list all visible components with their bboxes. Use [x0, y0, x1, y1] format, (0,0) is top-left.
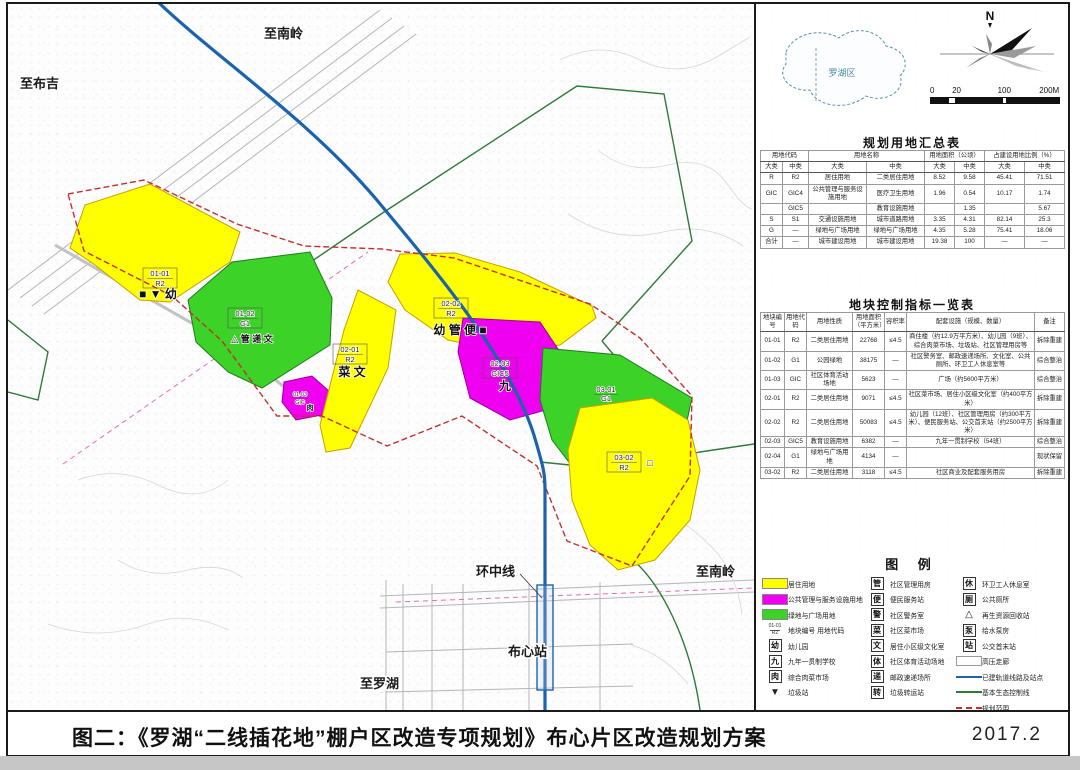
summary-table-body: RR2居住用地二类居住用地8.529.5845.4171.51GICGIC4公共… [761, 173, 1065, 248]
svg-text:01-03: 01-03 [293, 392, 307, 398]
svg-text:GIC5: GIC5 [491, 369, 509, 378]
svg-text:01-02: 01-02 [235, 309, 254, 318]
svg-text:G1: G1 [240, 319, 250, 328]
legend-label: 社区警务室 [890, 610, 924, 620]
table-row: G—绿地与广场用地绿地与广场用地4.355.2875.4118.06 [761, 226, 1065, 237]
table-cell: 绿地与广场用地 [867, 226, 925, 237]
scale-tick: 20 [952, 86, 961, 95]
legend-item: 基本生态控制线 [956, 685, 1066, 701]
legend-label: 高压走廊 [982, 656, 1009, 666]
right-panel: 罗湖区 N 0 20 100 200M [756, 4, 1068, 710]
legend-label: 垃圾站 [788, 687, 808, 697]
table-cell: 公园绿地 [807, 351, 853, 370]
table-cell: 3.35 [925, 215, 955, 226]
bus-terminal-icon: 站 [956, 639, 982, 652]
legend-item: 体社区体育活动场地 [864, 654, 956, 670]
header-cell: 中类 [955, 162, 985, 173]
table-cell: 教育设施用地 [807, 437, 853, 448]
legend-label: 再生资源回收站 [982, 610, 1030, 620]
eco-line-sample [956, 691, 982, 693]
table-cell [925, 203, 955, 214]
table-cell: 绿地与广场用地 [809, 226, 867, 237]
svg-text:肉: 肉 [307, 403, 314, 412]
table-cell: 50083 [853, 409, 885, 437]
water-pump-icon: 泵 [956, 624, 982, 637]
legend-item: 递邮政速递场所 [864, 669, 956, 685]
header-cell: 用地面积（平方米） [853, 313, 885, 332]
table-row: 02-01R2二类居住用地9071≤4.5社区菜市场、居住小区级文化室（约400… [761, 390, 1065, 409]
figure-title: 图二：《罗湖“二线插花地”棚户区改造专项规划》布心片区改造规划方案 [72, 722, 767, 752]
col-group-land-name: 用地名称 [809, 151, 925, 162]
table-cell: S1 [783, 215, 809, 226]
legend-label: 综合肉菜市场 [788, 672, 829, 682]
legend-label: 公共厕所 [982, 594, 1009, 604]
meat-market-icon: 肉 [762, 670, 788, 683]
table-cell: G [761, 226, 783, 237]
legend-label: 给水泵房 [982, 625, 1009, 635]
table-cell: 居住用地 [809, 173, 867, 184]
legend-item: 站公交首末站 [956, 638, 1066, 654]
inset-district-label: 罗湖区 [828, 68, 855, 78]
svg-text:□: □ [647, 458, 653, 468]
table-cell: GIC5 [783, 203, 809, 214]
legend-item: 休环卫工人休息室 [956, 576, 1066, 592]
legend-label: 社区体育活动场地 [890, 656, 944, 666]
table-cell: 1.74 [1025, 184, 1065, 203]
col-group-land-area: 用地面积（公顷） [925, 151, 985, 162]
label-to-nanling-right: 至南岭 [696, 564, 735, 579]
legend-label: 基本生态控制线 [982, 687, 1030, 697]
table-cell: 5.28 [955, 226, 985, 237]
district-inset-map: 罗湖区 [764, 20, 918, 120]
parcel-03-02 [568, 398, 700, 570]
legend-item: 文居住小区级文化室 [864, 638, 956, 654]
table-cell: 01-03 [761, 371, 785, 390]
table-cell: 二类居住用地 [807, 409, 853, 437]
figure-date: 2017.2 [972, 724, 1042, 746]
header-cell: 中类 [1025, 162, 1065, 173]
indicator-table-title: 地块控制指标一览表 [756, 296, 1068, 313]
svg-text:G1: G1 [601, 394, 611, 403]
table-cell: — [1025, 237, 1065, 248]
summary-table: 用地代码 用地名称 用地面积（公顷） 占建设用地比例（%） 大类中类大类中类大类… [760, 150, 1065, 249]
header-cell: 中类 [867, 162, 925, 173]
table-cell: 4.35 [925, 226, 955, 237]
table-cell: 城市建设用地 [809, 237, 867, 248]
recycling-icon: △ [956, 609, 982, 620]
table-cell: 19.38 [925, 237, 955, 248]
table-cell: 02-03 [761, 437, 785, 448]
table-cell: 九年一贯制学校（54班） [907, 437, 1035, 448]
table-cell [809, 203, 867, 214]
table-cell: GIC5 [785, 437, 807, 448]
table-cell: 3118 [853, 467, 885, 478]
table-cell: 6382 [853, 437, 885, 448]
table-cell: 01-02 [761, 351, 785, 370]
svg-text:菜 文: 菜 文 [337, 364, 366, 379]
table-cell: ≤4.5 [885, 390, 907, 409]
scale-tick: 200M [1039, 86, 1059, 95]
legend-item: 绿地与广场用地 [762, 607, 862, 623]
table-cell: 二类居住用地 [807, 332, 853, 351]
table-cell: 拆除重建 [1035, 390, 1065, 409]
header-cell: 中类 [783, 162, 809, 173]
market-icon: 菜 [864, 624, 890, 637]
table-cell: — [885, 371, 907, 390]
buxin-station-box [537, 585, 553, 690]
table-cell: 75.41 [985, 226, 1025, 237]
legend-item: 公共管理与服务设施用地 [762, 592, 862, 608]
table-cell: R [761, 173, 783, 184]
table-row: 01-02G1公园绿地38175—社区警务室、邮政速递场所、文化室、公共厕所、环… [761, 351, 1065, 370]
table-cell: R2 [785, 390, 807, 409]
table-row: RR2居住用地二类居住用地8.529.5845.4171.51 [761, 173, 1065, 184]
table-cell: 10.17 [985, 184, 1025, 203]
label-to-buji: 至布吉 [20, 76, 59, 91]
header-cell: 大类 [925, 162, 955, 173]
legend-item: 幼幼儿园 [762, 638, 862, 654]
legend-label: 环卫工人休息室 [982, 579, 1030, 589]
scale-tick: 0 [930, 86, 934, 95]
table-cell: 0.54 [955, 184, 985, 203]
nine-year-school-icon: 九 [762, 655, 788, 668]
legend-item: 肉综合肉菜市场 [762, 669, 862, 685]
sanitation-rest-icon: 休 [956, 577, 982, 590]
legend-item: △再生资源回收站 [956, 607, 1066, 623]
map-area: 01-01 R2 ■ ▼ 幼 01-02 G1 △ 管 递 文 01-03 GI… [8, 4, 754, 710]
summary-table-title: 规划用地汇总表 [756, 134, 1068, 151]
convenience-service-icon: 便 [864, 593, 890, 606]
table-cell: 交通设施用地 [809, 215, 867, 226]
table-row: 01-01R2二类居住用地22768≤4.5商住楼（约12.9万平方米）、幼儿园… [761, 332, 1065, 351]
table-cell: 城市道路用地 [867, 215, 925, 226]
legend-column-3: 休环卫工人休息室厕公共厕所△再生资源回收站泵给水泵房站公交首末站高压走廊已建轨道… [956, 576, 1066, 716]
north-label: N [986, 9, 995, 23]
table-cell: G1 [785, 351, 807, 370]
table-row: 01-03GIC社区体育活动场地5623—广场（约5600平方米）综合整治 [761, 371, 1065, 390]
svg-text:02-03: 02-03 [490, 359, 509, 368]
plan-boundary-sample [956, 707, 982, 709]
table-cell: 综合整治 [1035, 437, 1065, 448]
legend-label: 地块编号 用地代码 [788, 625, 844, 635]
header-cell: 用地代码 [785, 313, 807, 332]
table-cell [985, 203, 1025, 214]
legend-item: 泵给水泵房 [956, 623, 1066, 639]
table-row: 合计—城市建设用地城市建设用地19.38100—— [761, 237, 1065, 248]
legend-item: 已建轨道线路及站点 [956, 669, 1066, 685]
legend-title: 图 例 [756, 554, 1068, 573]
table-cell: 社区警务室、邮政速递场所、文化室、公共厕所、环卫工人休息室等 [907, 351, 1035, 370]
indicator-table: 地块编号用地代码用地性质用地面积（平方米）容积率配套设施（规模、数量）备注 01… [760, 312, 1065, 479]
table-row: 02-03GIC5教育设施用地6382—九年一贯制学校（54班）综合整治 [761, 437, 1065, 448]
legend-label: 幼儿园 [788, 641, 808, 651]
hv-corridor-swatch [956, 656, 982, 666]
table-cell: 教育设施用地 [867, 203, 925, 214]
table-cell: GIC [785, 371, 807, 390]
label-to-luohu: 至罗湖 [360, 676, 399, 691]
table-cell [761, 203, 783, 214]
table-cell: 38175 [853, 351, 885, 370]
table-cell: 100 [955, 237, 985, 248]
table-cell: 社区商业及配套服务用房 [907, 467, 1035, 478]
table-cell: 03-02 [761, 467, 785, 478]
table-cell: R2 [785, 332, 807, 351]
table-row: GIC5教育设施用地1.355.67 [761, 203, 1065, 214]
legend-item: 高压走廊 [956, 654, 1066, 670]
table-cell: 广场（约5600平方米） [907, 371, 1035, 390]
parcel-icons: ■ ▼ 幼 [139, 286, 177, 301]
table-cell: ≤4.5 [885, 409, 907, 437]
plot-code-icon: 01-01R2 [762, 624, 788, 636]
header-cell: 备注 [1035, 313, 1065, 332]
table-cell: GIC [761, 184, 783, 203]
table-cell: — [885, 437, 907, 448]
table-cell: R2 [785, 467, 807, 478]
table-cell: 综合整治 [1035, 371, 1065, 390]
table-row: 02-04G1绿地与广场用地4134—现状保留 [761, 448, 1065, 467]
title-band: 图二：《罗湖“二线插花地”棚户区改造专项规划》布心片区改造规划方案 2017.2 [8, 710, 1068, 757]
header-cell: 大类 [761, 162, 783, 173]
svg-text:九: 九 [498, 378, 511, 393]
table-cell: 8.52 [925, 173, 955, 184]
header-cell: 用地性质 [807, 313, 853, 332]
table-cell: ≤4.5 [885, 467, 907, 478]
svg-text:R2: R2 [446, 309, 456, 318]
table-cell: 02-02 [761, 409, 785, 437]
page-margin-shadow [0, 756, 1080, 770]
parcels-layer [70, 184, 700, 570]
legend-item: 警社区警务室 [864, 607, 956, 623]
table-cell: 合计 [761, 237, 783, 248]
table-cell: 二类居住用地 [807, 467, 853, 478]
table-row: GICGIC4公共管理与服务设施用地医疗卫生用地1.960.5410.171.7… [761, 184, 1065, 203]
table-cell: 拆除重建 [1035, 409, 1065, 437]
header-cell: 大类 [809, 162, 867, 173]
table-cell: 5.67 [1025, 203, 1065, 214]
table-cell: 45.41 [985, 173, 1025, 184]
legend-label: 便民服务站 [890, 594, 924, 604]
green-space-swatch [762, 609, 788, 620]
kindergarten-icon: 幼 [762, 639, 788, 652]
svg-text:幼 管 便 ■: 幼 管 便 ■ [433, 322, 486, 337]
header-cell: 容积率 [885, 313, 907, 332]
legend-label: 公交首末站 [982, 641, 1016, 651]
legend-label: 垃圾转运站 [890, 687, 924, 697]
summary-subheader-row: 大类中类大类中类大类中类大类中类 [761, 162, 1065, 173]
table-cell [907, 448, 1035, 467]
table-cell: 现状保留 [1035, 448, 1065, 467]
metro-line-sample [956, 676, 982, 678]
legend-label: 社区菜市场 [890, 625, 924, 635]
parcel-label: 01-01 [150, 269, 169, 278]
table-cell: 02-04 [761, 448, 785, 467]
table-cell: 社区体育活动场地 [807, 371, 853, 390]
table-cell: 4.31 [955, 215, 985, 226]
residential-swatch [762, 578, 788, 589]
legend-item: 厕公共厕所 [956, 592, 1066, 608]
table-cell: 综合整治 [1035, 351, 1065, 370]
table-cell: 城市建设用地 [867, 237, 925, 248]
table-row: 02-02R2二类居住用地50083≤4.5幼儿园（12班）、社区管理用房（约3… [761, 409, 1065, 437]
svg-text:R2: R2 [345, 355, 355, 364]
legend-item: 九九年一贯制学校 [762, 654, 862, 670]
legend-column-1: 居住用地公共管理与服务设施用地绿地与广场用地01-01R2地块编号 用地代码幼幼… [762, 576, 862, 700]
table-cell: 25.3 [1025, 215, 1065, 226]
table-cell: GIC4 [783, 184, 809, 203]
table-cell: 9071 [853, 390, 885, 409]
table-cell: 82.14 [985, 215, 1025, 226]
legend-item: 转垃圾转运站 [864, 685, 956, 701]
parcel-icons: △ 管 递 文 [231, 333, 273, 344]
label-buxin-station: 布心站 [508, 644, 547, 659]
public-facility-swatch [762, 594, 788, 605]
table-cell: 社区菜市场、居住小区级文化室（约400平方米） [907, 390, 1035, 409]
table-cell: R2 [785, 409, 807, 437]
header-cell: 大类 [985, 162, 1025, 173]
plan-sheet: 01-01 R2 ■ ▼ 幼 01-02 G1 △ 管 递 文 01-03 GI… [6, 2, 1070, 757]
col-group-land-code: 用地代码 [761, 151, 809, 162]
svg-text:03-02: 03-02 [614, 453, 633, 462]
legend-item: 便便民服务站 [864, 592, 956, 608]
table-cell: 二类居住用地 [807, 390, 853, 409]
table-cell: 二类居住用地 [867, 173, 925, 184]
svg-text:03-01: 03-01 [596, 385, 615, 394]
community-mgmt-icon: 管 [864, 577, 890, 590]
scale-bar: 0 20 100 200M [930, 86, 1060, 104]
legend-label: 居住用地 [788, 579, 815, 589]
table-cell: 02-01 [761, 390, 785, 409]
svg-text:02-01: 02-01 [340, 345, 359, 354]
legend-label: 邮政速递场所 [890, 672, 931, 682]
north-arrow: N [932, 6, 1062, 84]
public-toilet-icon: 厕 [956, 593, 982, 606]
svg-text:02-02: 02-02 [441, 299, 460, 308]
table-row: SS1交通设施用地城市道路用地3.354.3182.1425.3 [761, 215, 1065, 226]
police-room-icon: 警 [864, 608, 890, 621]
legend-label: 九年一贯制学校 [788, 656, 836, 666]
table-cell: 商住楼（约12.9万平方米）、幼儿园（9班）、综合肉菜市场、垃圾站、社区管理用房… [907, 332, 1035, 351]
post-express-icon: 递 [864, 670, 890, 683]
table-cell: 拆除重建 [1035, 467, 1065, 478]
table-cell: 18.06 [1025, 226, 1065, 237]
table-cell: 绿地与广场用地 [807, 448, 853, 467]
legend-column-2: 管社区管理用房便便民服务站警社区警务室菜社区菜市场文居住小区级文化室体社区体育活… [864, 576, 956, 700]
legend-label: 公共管理与服务设施用地 [788, 594, 863, 604]
table-cell: ≤4.5 [885, 332, 907, 351]
table-cell: 1.35 [955, 203, 985, 214]
legend-label: 绿地与广场用地 [788, 610, 836, 620]
table-cell: G1 [785, 448, 807, 467]
table-cell: — [985, 237, 1025, 248]
table-cell: 71.51 [1025, 173, 1065, 184]
col-group-land-ratio: 占建设用地比例（%） [985, 151, 1065, 162]
svg-text:GIC: GIC [295, 400, 305, 406]
legend-label: 社区管理用房 [890, 579, 931, 589]
culture-room-icon: 文 [864, 639, 890, 652]
legend-item: ▼垃圾站 [762, 685, 862, 701]
table-cell: 5623 [853, 371, 885, 390]
legend-label: 居住小区级文化室 [890, 641, 944, 651]
table-cell: 4134 [853, 448, 885, 467]
table-cell: — [783, 226, 809, 237]
label-huanzhong-line: 环中线 [476, 564, 515, 579]
legend-item: 居住用地 [762, 576, 862, 592]
plan-map-svg: 01-01 R2 ■ ▼ 幼 01-02 G1 △ 管 递 文 01-03 GI… [8, 4, 754, 710]
label-to-nanling-top: 至南岭 [264, 26, 303, 41]
legend-item: 01-01R2地块编号 用地代码 [762, 623, 862, 639]
table-cell: R2 [783, 173, 809, 184]
scale-tick: 100 [998, 86, 1011, 95]
header-cell: 配套设施（规模、数量） [907, 313, 1035, 332]
contours [48, 37, 752, 684]
table-cell: — [885, 448, 907, 467]
table-cell: 01-01 [761, 332, 785, 351]
table-cell: 幼儿园（12班）、社区管理用房（约300平方米）、便民服务站、公交首末站（约25… [907, 409, 1035, 437]
table-cell: — [783, 237, 809, 248]
table-row: 03-02R2二类居住用地3118≤4.5社区商业及配套服务用房拆除重建 [761, 467, 1065, 478]
legend-item: 管社区管理用房 [864, 576, 956, 592]
table-cell: 医疗卫生用地 [867, 184, 925, 203]
table-cell: S [761, 215, 783, 226]
garbage-transfer-icon: 转 [864, 686, 890, 699]
svg-text:R2: R2 [619, 463, 629, 472]
table-cell: — [885, 351, 907, 370]
table-cell: 1.96 [925, 184, 955, 203]
table-cell: 公共管理与服务设施用地 [809, 184, 867, 203]
indicator-table-body: 01-01R2二类居住用地22768≤4.5商住楼（约12.9万平方米）、幼儿园… [761, 332, 1065, 479]
garbage-station-icon: ▼ [762, 687, 788, 698]
table-cell: 拆除重建 [1035, 332, 1065, 351]
legend-item: 菜社区菜市场 [864, 623, 956, 639]
sports-ground-icon: 体 [864, 655, 890, 668]
table-cell: 9.58 [955, 173, 985, 184]
table-cell: 22768 [853, 332, 885, 351]
indicator-header-row: 地块编号用地代码用地性质用地面积（平方米）容积率配套设施（规模、数量）备注 [761, 313, 1065, 332]
header-cell: 地块编号 [761, 313, 785, 332]
legend-label: 已建轨道线路及站点 [982, 672, 1043, 682]
